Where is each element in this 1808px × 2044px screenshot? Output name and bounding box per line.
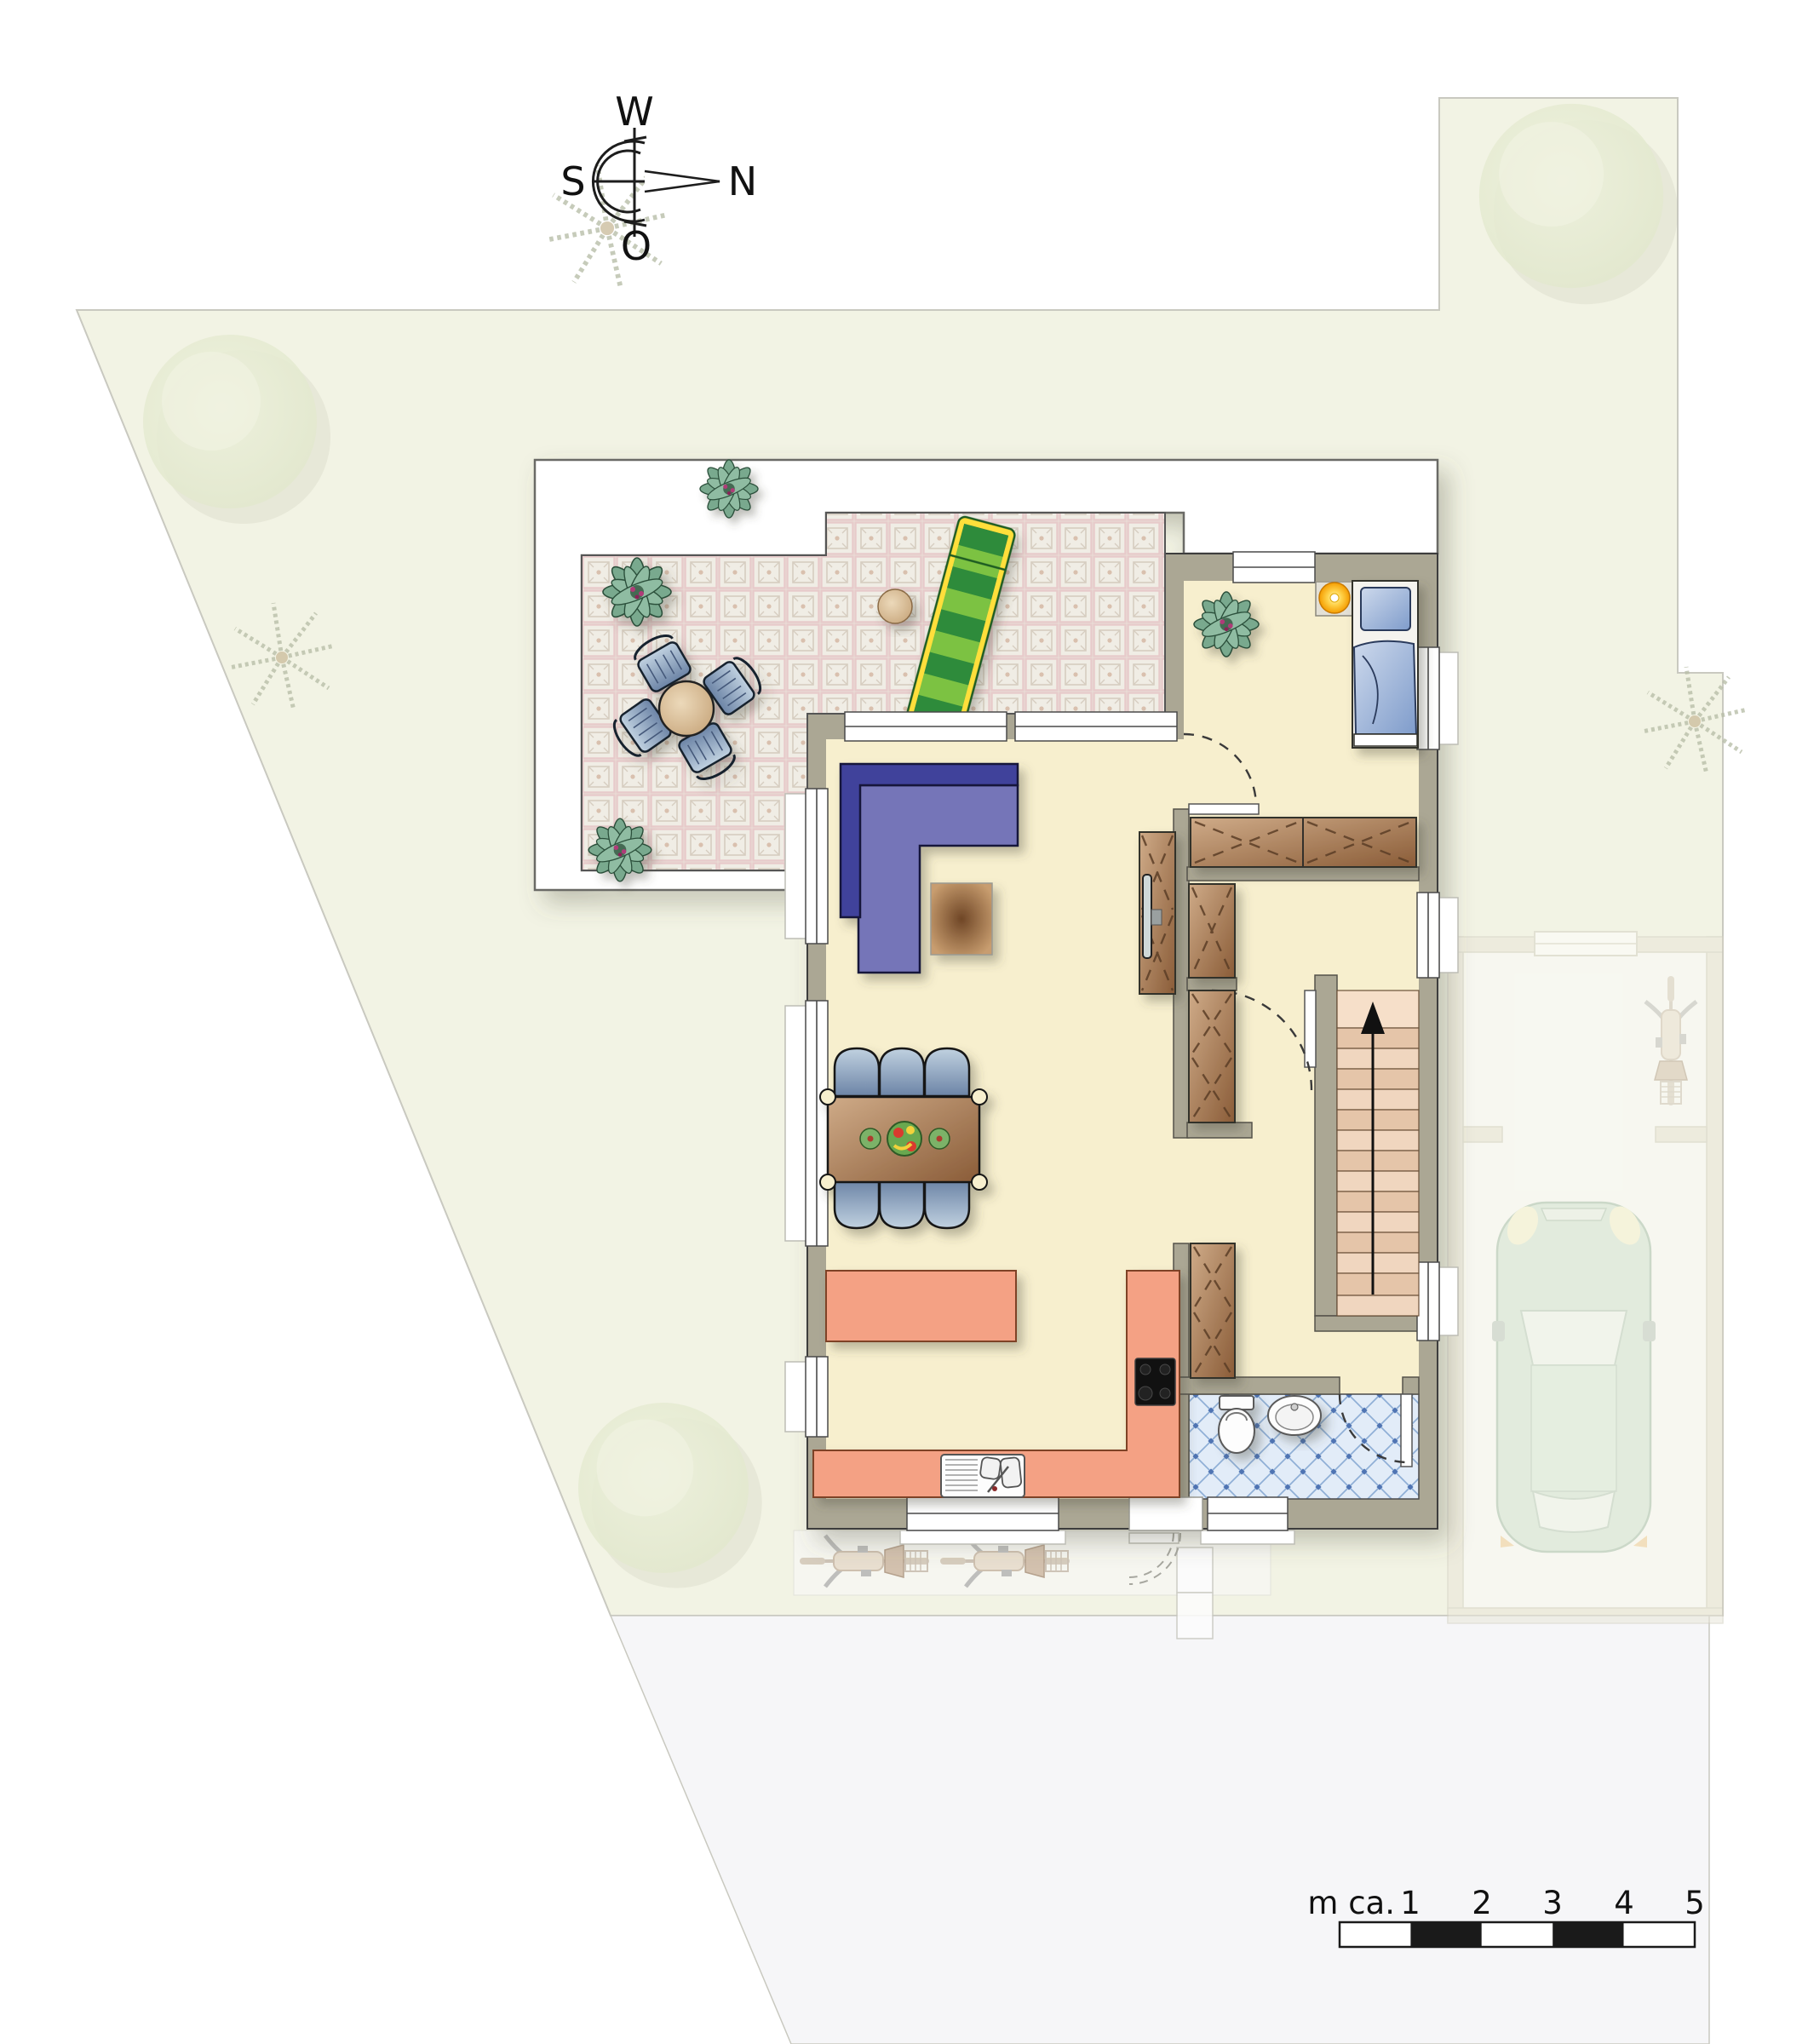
compass-label-east: O [621,223,651,269]
dining-chair-icon [880,1180,924,1228]
door-leaf [1401,1394,1412,1467]
kitchen-sink-icon [941,1455,1025,1497]
dining-chair-icon [835,1180,879,1228]
scale-tick-4: 4 [1614,1885,1634,1921]
plant-icon [603,558,671,626]
wardrobe-icon [1191,1243,1235,1378]
patio-table-icon [659,681,714,736]
dining-area [820,1048,987,1228]
compass-label-north: N [728,158,757,204]
bed-icon [1352,581,1418,748]
coffee-table-icon [931,883,992,955]
compass-label-west: W [615,89,653,135]
duvet [1354,641,1416,734]
scale-tick-5: 5 [1685,1885,1705,1921]
fruit-bowl-icon [887,1122,921,1156]
scale-unit-label: m ca. [1307,1885,1395,1921]
dining-chair-icon [835,1048,879,1096]
wash-basin-icon [1268,1396,1321,1435]
front-door-opening [1129,1497,1202,1530]
entrance-steps-icon [1177,1593,1213,1639]
stairs-icon [1337,990,1419,1316]
garage [1448,932,1723,1623]
scale-tick-3: 3 [1542,1885,1563,1921]
dining-chair-icon [925,1180,969,1228]
tv-icon [1143,875,1151,958]
dining-chair-icon [880,1048,924,1096]
tv-wall [1139,832,1175,994]
dining-chair-icon [925,1048,969,1096]
toilet-icon [1219,1396,1254,1453]
sliding-door [1189,804,1259,814]
entrance-steps-icon [1177,1547,1213,1593]
side-table-icon [878,589,912,623]
pillow [1361,588,1410,630]
door-leaf [1305,990,1316,1067]
plant-icon [1194,592,1259,657]
site-plan: W N S O m ca. 1 2 3 4 5 [0,0,1808,2044]
compass-label-south: S [560,158,585,204]
plant-icon [588,818,651,881]
wardrobe-icon [1189,990,1235,1122]
tv-stand [1151,910,1162,925]
plant-icon [700,460,758,518]
road-area [611,1616,1709,2044]
scale-tick-1: 1 [1400,1885,1421,1921]
scale-tick-2: 2 [1472,1885,1492,1921]
kitchen-island-icon [826,1271,1016,1341]
car-icon [1492,1201,1656,1552]
